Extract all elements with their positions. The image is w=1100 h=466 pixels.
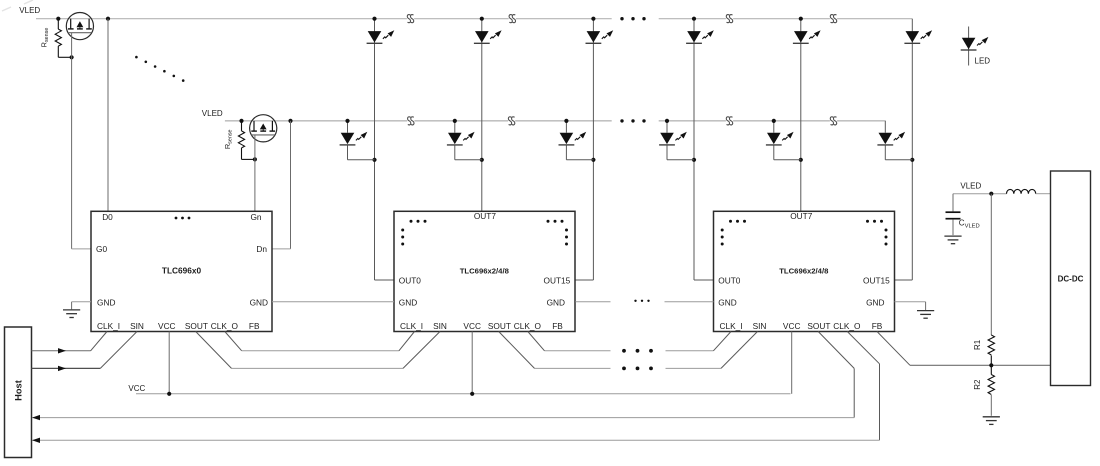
svg-text:Host: Host — [13, 380, 23, 401]
svg-text:G0: G0 — [96, 244, 107, 254]
svg-text:R1: R1 — [973, 339, 982, 350]
svg-text:VLED: VLED — [960, 182, 981, 191]
svg-text:FB: FB — [552, 321, 563, 331]
svg-text:VLED: VLED — [19, 6, 40, 15]
svg-text:GND: GND — [718, 297, 736, 307]
svg-text:CLK_O: CLK_O — [833, 321, 861, 331]
svg-text:GND: GND — [250, 297, 268, 307]
svg-text:TLC696x2/4/8: TLC696x2/4/8 — [460, 266, 510, 275]
svg-text:OUT0: OUT0 — [399, 276, 422, 286]
svg-text:FB: FB — [249, 321, 260, 331]
svg-text:OUT15: OUT15 — [863, 276, 890, 286]
svg-text:OUT15: OUT15 — [544, 276, 571, 286]
svg-text:SIN: SIN — [130, 321, 144, 331]
svg-text:SIN: SIN — [753, 321, 767, 331]
svg-text:TLC696x0: TLC696x0 — [162, 265, 202, 275]
svg-text:DC-DC: DC-DC — [1058, 274, 1084, 283]
svg-text:FB: FB — [872, 321, 883, 331]
svg-text:CLK_I: CLK_I — [97, 321, 120, 331]
svg-text:VCC: VCC — [783, 321, 801, 331]
svg-text:OUT7: OUT7 — [790, 211, 813, 221]
svg-text:CLK_O: CLK_O — [514, 321, 542, 331]
svg-text:D0: D0 — [102, 212, 113, 222]
svg-text:CLK_I: CLK_I — [719, 321, 742, 331]
svg-text:R2: R2 — [973, 379, 982, 390]
svg-text:OUT0: OUT0 — [718, 276, 741, 286]
svg-text:TLC696x2/4/8: TLC696x2/4/8 — [779, 266, 829, 275]
svg-text:GND: GND — [97, 297, 115, 307]
svg-text:GND: GND — [547, 297, 565, 307]
svg-text:Gn: Gn — [250, 212, 261, 222]
svg-text:VCC: VCC — [128, 384, 145, 393]
svg-text:CLK_I: CLK_I — [400, 321, 423, 331]
svg-text:VLED: VLED — [202, 109, 223, 118]
svg-text:SIN: SIN — [433, 321, 447, 331]
svg-text:GND: GND — [399, 297, 417, 307]
svg-text:VCC: VCC — [463, 321, 481, 331]
svg-text:SOUT: SOUT — [807, 321, 830, 331]
svg-text:VCC: VCC — [158, 321, 176, 331]
svg-text:LED: LED — [975, 57, 991, 66]
svg-text:OUT7: OUT7 — [474, 211, 497, 221]
svg-text:SOUT: SOUT — [488, 321, 511, 331]
svg-text:GND: GND — [866, 297, 884, 307]
svg-text:Dn: Dn — [256, 244, 267, 254]
svg-text:CLK_O: CLK_O — [211, 321, 239, 331]
svg-text:SOUT: SOUT — [185, 321, 208, 331]
